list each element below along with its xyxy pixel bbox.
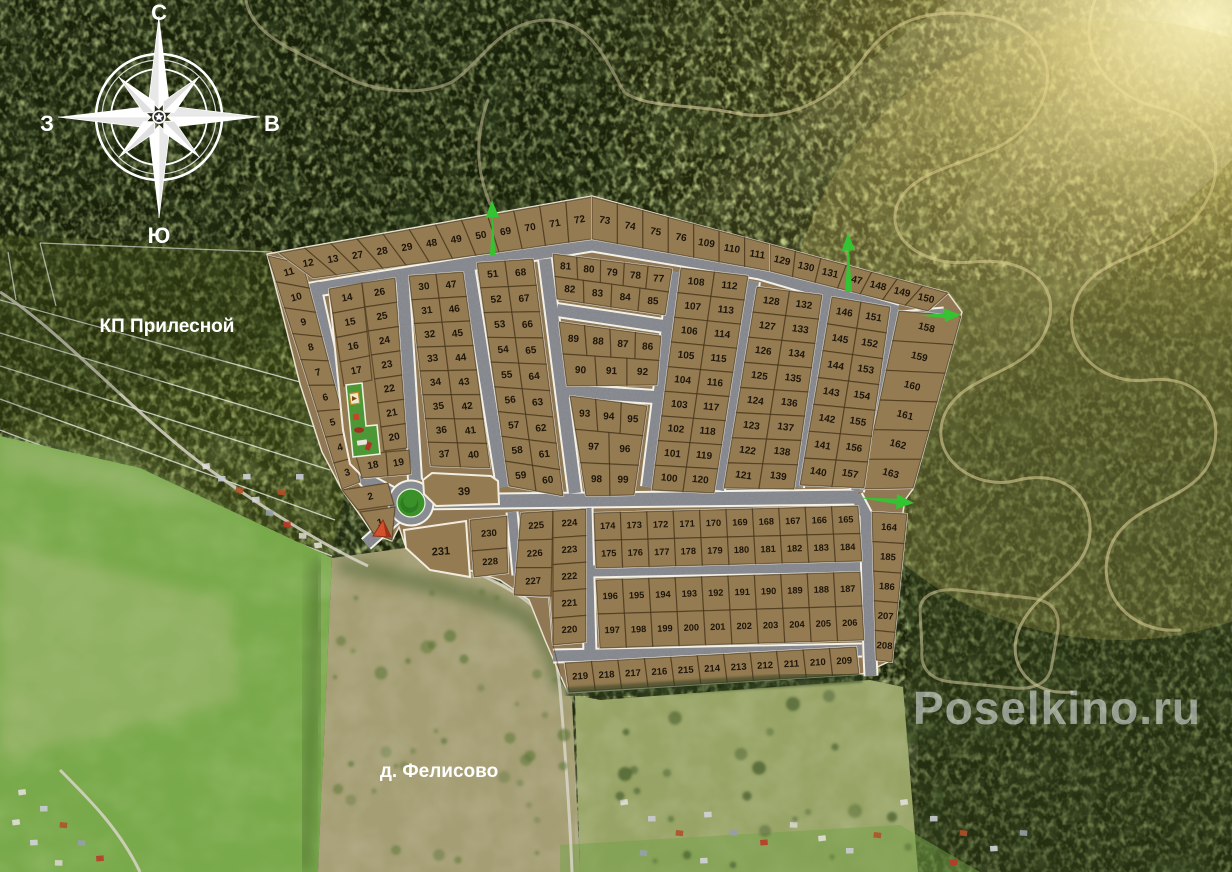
svg-text:117: 117 (703, 401, 721, 414)
svg-text:219: 219 (572, 671, 588, 683)
svg-text:89: 89 (568, 334, 580, 346)
svg-text:118: 118 (699, 425, 717, 438)
svg-text:116: 116 (706, 377, 724, 390)
svg-text:41: 41 (464, 425, 477, 437)
svg-text:81: 81 (560, 261, 572, 273)
svg-text:180: 180 (734, 545, 750, 556)
svg-text:КП Прилесной: КП Прилесной (100, 316, 235, 337)
svg-text:186: 186 (879, 581, 896, 593)
svg-text:34: 34 (429, 377, 442, 389)
svg-text:224: 224 (561, 517, 578, 529)
svg-text:211: 211 (784, 658, 801, 670)
svg-text:199: 199 (657, 623, 673, 634)
svg-text:201: 201 (710, 622, 726, 633)
svg-text:87: 87 (617, 339, 629, 351)
svg-text:187: 187 (840, 584, 856, 595)
svg-text:114: 114 (714, 328, 732, 341)
svg-text:42: 42 (461, 401, 474, 413)
svg-text:124: 124 (746, 395, 764, 408)
svg-text:76: 76 (675, 232, 688, 245)
svg-text:193: 193 (682, 588, 698, 599)
svg-text:83: 83 (592, 288, 604, 300)
svg-text:168: 168 (759, 516, 775, 527)
svg-text:200: 200 (684, 622, 700, 633)
svg-text:122: 122 (738, 444, 756, 457)
svg-text:197: 197 (604, 625, 620, 636)
svg-text:135: 135 (784, 372, 802, 385)
svg-text:58: 58 (511, 445, 524, 457)
svg-text:52: 52 (490, 294, 503, 306)
svg-text:223: 223 (561, 544, 578, 556)
svg-text:183: 183 (813, 542, 829, 553)
svg-text:99: 99 (617, 474, 629, 485)
svg-text:172: 172 (653, 519, 669, 530)
svg-text:40: 40 (467, 449, 480, 461)
svg-text:208: 208 (876, 640, 893, 652)
svg-text:222: 222 (561, 571, 578, 583)
svg-text:60: 60 (542, 475, 555, 487)
svg-text:214: 214 (704, 663, 721, 675)
svg-text:90: 90 (575, 365, 587, 377)
svg-text:196: 196 (602, 591, 618, 602)
svg-text:86: 86 (642, 341, 654, 353)
svg-text:194: 194 (655, 589, 672, 600)
svg-text:59: 59 (515, 470, 528, 482)
svg-text:102: 102 (667, 423, 685, 436)
svg-text:171: 171 (679, 518, 695, 529)
svg-text:178: 178 (681, 546, 697, 557)
svg-text:д. Фелисово: д. Фелисово (380, 761, 498, 782)
svg-text:В: В (264, 111, 280, 136)
svg-text:55: 55 (501, 369, 514, 381)
svg-text:98: 98 (591, 474, 603, 485)
svg-text:75: 75 (649, 226, 662, 239)
svg-text:54: 54 (497, 344, 510, 356)
svg-text:227: 227 (525, 576, 542, 588)
svg-text:С: С (151, 0, 167, 25)
svg-text:67: 67 (518, 293, 531, 305)
svg-text:120: 120 (691, 474, 709, 487)
svg-text:46: 46 (448, 303, 461, 315)
svg-text:61: 61 (538, 449, 551, 461)
svg-text:101: 101 (664, 448, 682, 461)
svg-text:175: 175 (601, 548, 617, 559)
svg-text:205: 205 (816, 618, 832, 629)
svg-text:36: 36 (435, 425, 448, 437)
svg-text:Ю: Ю (148, 223, 171, 248)
svg-text:207: 207 (877, 611, 894, 623)
svg-text:33: 33 (427, 353, 440, 365)
svg-text:167: 167 (785, 516, 801, 527)
svg-text:166: 166 (811, 515, 827, 526)
svg-text:210: 210 (810, 657, 826, 669)
svg-text:53: 53 (494, 319, 507, 331)
svg-text:113: 113 (717, 304, 735, 317)
svg-text:134: 134 (788, 348, 806, 361)
svg-text:73: 73 (598, 215, 611, 228)
svg-text:97: 97 (588, 442, 600, 453)
svg-text:174: 174 (600, 521, 617, 532)
svg-text:231: 231 (431, 545, 450, 558)
svg-text:35: 35 (432, 401, 445, 413)
svg-text:213: 213 (730, 662, 746, 674)
svg-text:78: 78 (630, 270, 642, 282)
svg-text:176: 176 (627, 547, 643, 558)
svg-text:230: 230 (481, 528, 498, 540)
svg-text:202: 202 (736, 621, 752, 632)
svg-text:96: 96 (619, 444, 631, 455)
svg-text:137: 137 (777, 421, 795, 434)
svg-text:203: 203 (763, 620, 779, 631)
svg-text:З: З (40, 111, 54, 136)
svg-text:225: 225 (528, 520, 545, 532)
svg-text:169: 169 (732, 517, 748, 528)
svg-text:44: 44 (455, 352, 468, 364)
svg-text:112: 112 (721, 280, 739, 293)
svg-text:62: 62 (535, 423, 548, 435)
svg-text:165: 165 (838, 514, 854, 525)
svg-text:188: 188 (814, 584, 830, 595)
svg-text:51: 51 (487, 269, 500, 281)
svg-text:105: 105 (677, 350, 695, 363)
svg-text:179: 179 (707, 545, 723, 556)
svg-text:94: 94 (603, 411, 615, 422)
svg-text:107: 107 (684, 301, 702, 314)
svg-text:45: 45 (451, 328, 464, 340)
svg-text:100: 100 (660, 472, 678, 485)
svg-text:125: 125 (750, 370, 768, 383)
svg-text:212: 212 (757, 660, 773, 672)
svg-text:64: 64 (528, 371, 541, 383)
svg-text:181: 181 (760, 544, 776, 555)
svg-text:32: 32 (424, 329, 437, 341)
svg-text:119: 119 (695, 450, 713, 463)
svg-text:95: 95 (627, 414, 639, 425)
svg-text:57: 57 (508, 420, 521, 432)
svg-text:126: 126 (754, 345, 772, 358)
svg-text:88: 88 (592, 336, 604, 348)
svg-text:93: 93 (579, 408, 591, 419)
svg-text:184: 184 (840, 542, 857, 553)
svg-text:191: 191 (734, 587, 750, 598)
svg-text:206: 206 (842, 618, 858, 629)
svg-text:103: 103 (670, 399, 688, 412)
svg-text:182: 182 (787, 543, 803, 554)
svg-text:164: 164 (881, 522, 898, 534)
svg-text:84: 84 (619, 292, 631, 304)
svg-text:39: 39 (458, 486, 471, 499)
svg-text:77: 77 (653, 273, 665, 285)
svg-text:74: 74 (624, 220, 637, 233)
svg-text:195: 195 (629, 590, 645, 601)
svg-text:66: 66 (521, 319, 534, 331)
svg-text:198: 198 (631, 624, 647, 635)
svg-text:115: 115 (710, 353, 728, 366)
svg-text:132: 132 (795, 299, 813, 312)
svg-text:92: 92 (637, 367, 649, 379)
svg-text:215: 215 (678, 665, 695, 677)
svg-text:218: 218 (598, 669, 614, 681)
svg-text:204: 204 (789, 619, 806, 630)
svg-text:185: 185 (880, 551, 897, 563)
svg-text:190: 190 (761, 586, 777, 597)
svg-text:228: 228 (482, 556, 499, 568)
svg-text:121: 121 (734, 469, 752, 482)
svg-text:56: 56 (504, 394, 517, 406)
svg-text:Poselkino.ru: Poselkino.ru (913, 682, 1201, 734)
svg-text:170: 170 (706, 518, 722, 529)
svg-text:106: 106 (680, 325, 698, 338)
svg-text:189: 189 (787, 585, 803, 596)
svg-text:173: 173 (626, 520, 642, 531)
svg-text:104: 104 (674, 374, 692, 387)
svg-text:65: 65 (525, 345, 538, 357)
svg-text:192: 192 (708, 588, 724, 599)
svg-text:47: 47 (445, 279, 458, 291)
svg-text:136: 136 (780, 397, 798, 410)
svg-text:82: 82 (564, 284, 576, 296)
svg-text:91: 91 (606, 366, 618, 378)
svg-text:217: 217 (625, 668, 641, 680)
svg-text:221: 221 (561, 597, 578, 609)
svg-text:108: 108 (687, 276, 705, 289)
svg-text:63: 63 (532, 397, 545, 409)
svg-text:68: 68 (515, 267, 528, 279)
svg-text:37: 37 (438, 448, 451, 460)
svg-text:30: 30 (418, 281, 431, 293)
svg-text:43: 43 (458, 376, 471, 388)
svg-text:177: 177 (654, 547, 670, 558)
svg-text:209: 209 (836, 655, 852, 667)
svg-text:80: 80 (583, 264, 595, 276)
svg-text:31: 31 (421, 305, 434, 317)
svg-text:220: 220 (561, 624, 578, 636)
svg-text:133: 133 (791, 323, 809, 336)
svg-text:79: 79 (606, 267, 618, 279)
svg-text:216: 216 (651, 666, 667, 678)
svg-text:85: 85 (647, 296, 659, 308)
svg-text:226: 226 (527, 548, 544, 560)
svg-text:127: 127 (758, 320, 776, 333)
